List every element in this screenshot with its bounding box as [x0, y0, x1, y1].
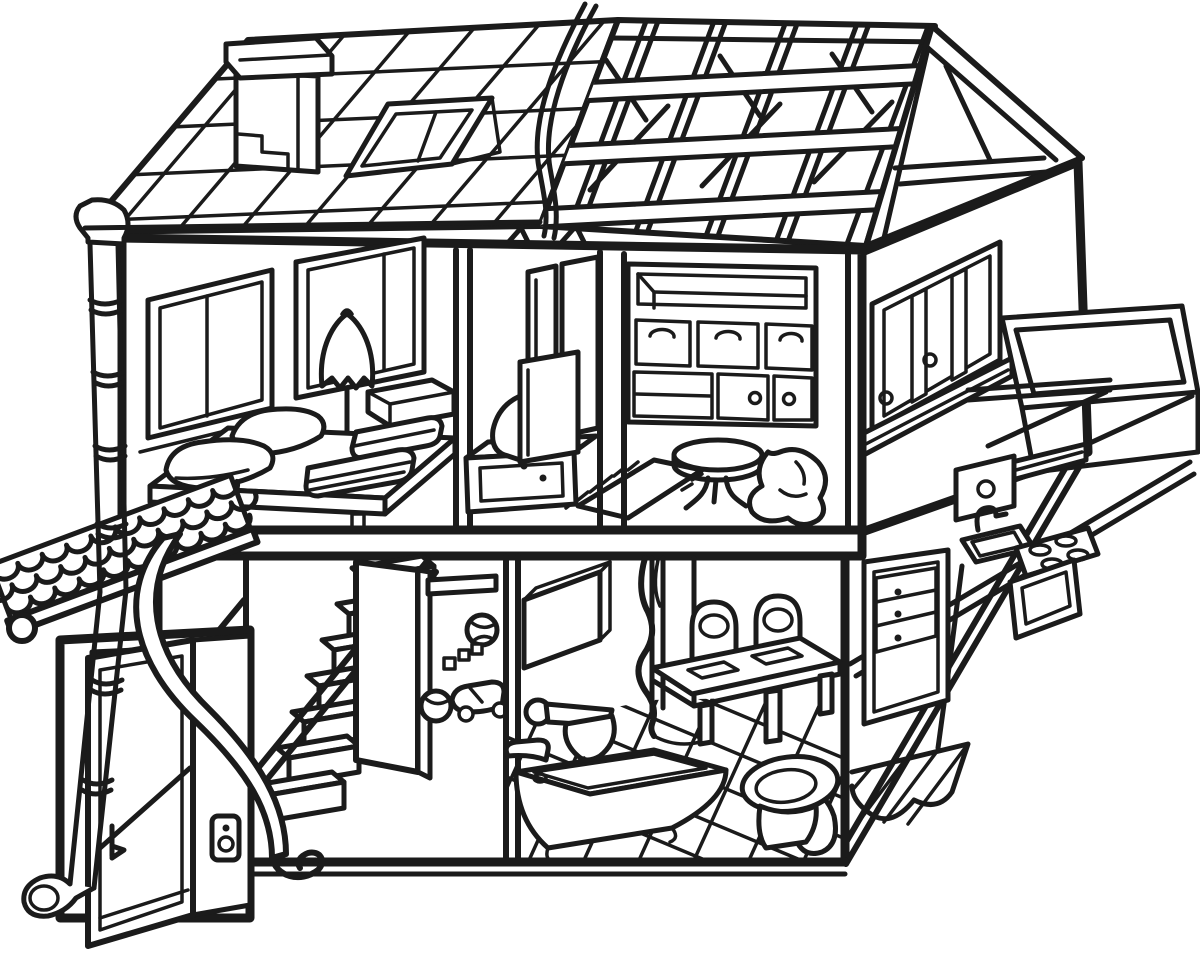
lower-floor — [158, 556, 895, 925]
chimney-icon — [226, 38, 332, 172]
refrigerator-icon — [864, 550, 948, 724]
doorbell-panel-icon — [212, 816, 239, 860]
interior-door-icon — [356, 562, 430, 778]
cabinet-doors-icon — [634, 372, 812, 420]
kitchen-floor-icon — [844, 736, 968, 824]
beanbag-icon — [750, 450, 826, 525]
house-cutaway-drawing — [0, 0, 1200, 962]
beach-ball-icon — [467, 615, 497, 645]
second-ball-icon — [421, 691, 451, 721]
drawer-row-icon — [636, 320, 812, 370]
wall-slot-shelf-icon — [428, 576, 496, 594]
wall-unit-icon — [628, 264, 816, 426]
coloring-page-house-illustration — [0, 0, 1200, 962]
